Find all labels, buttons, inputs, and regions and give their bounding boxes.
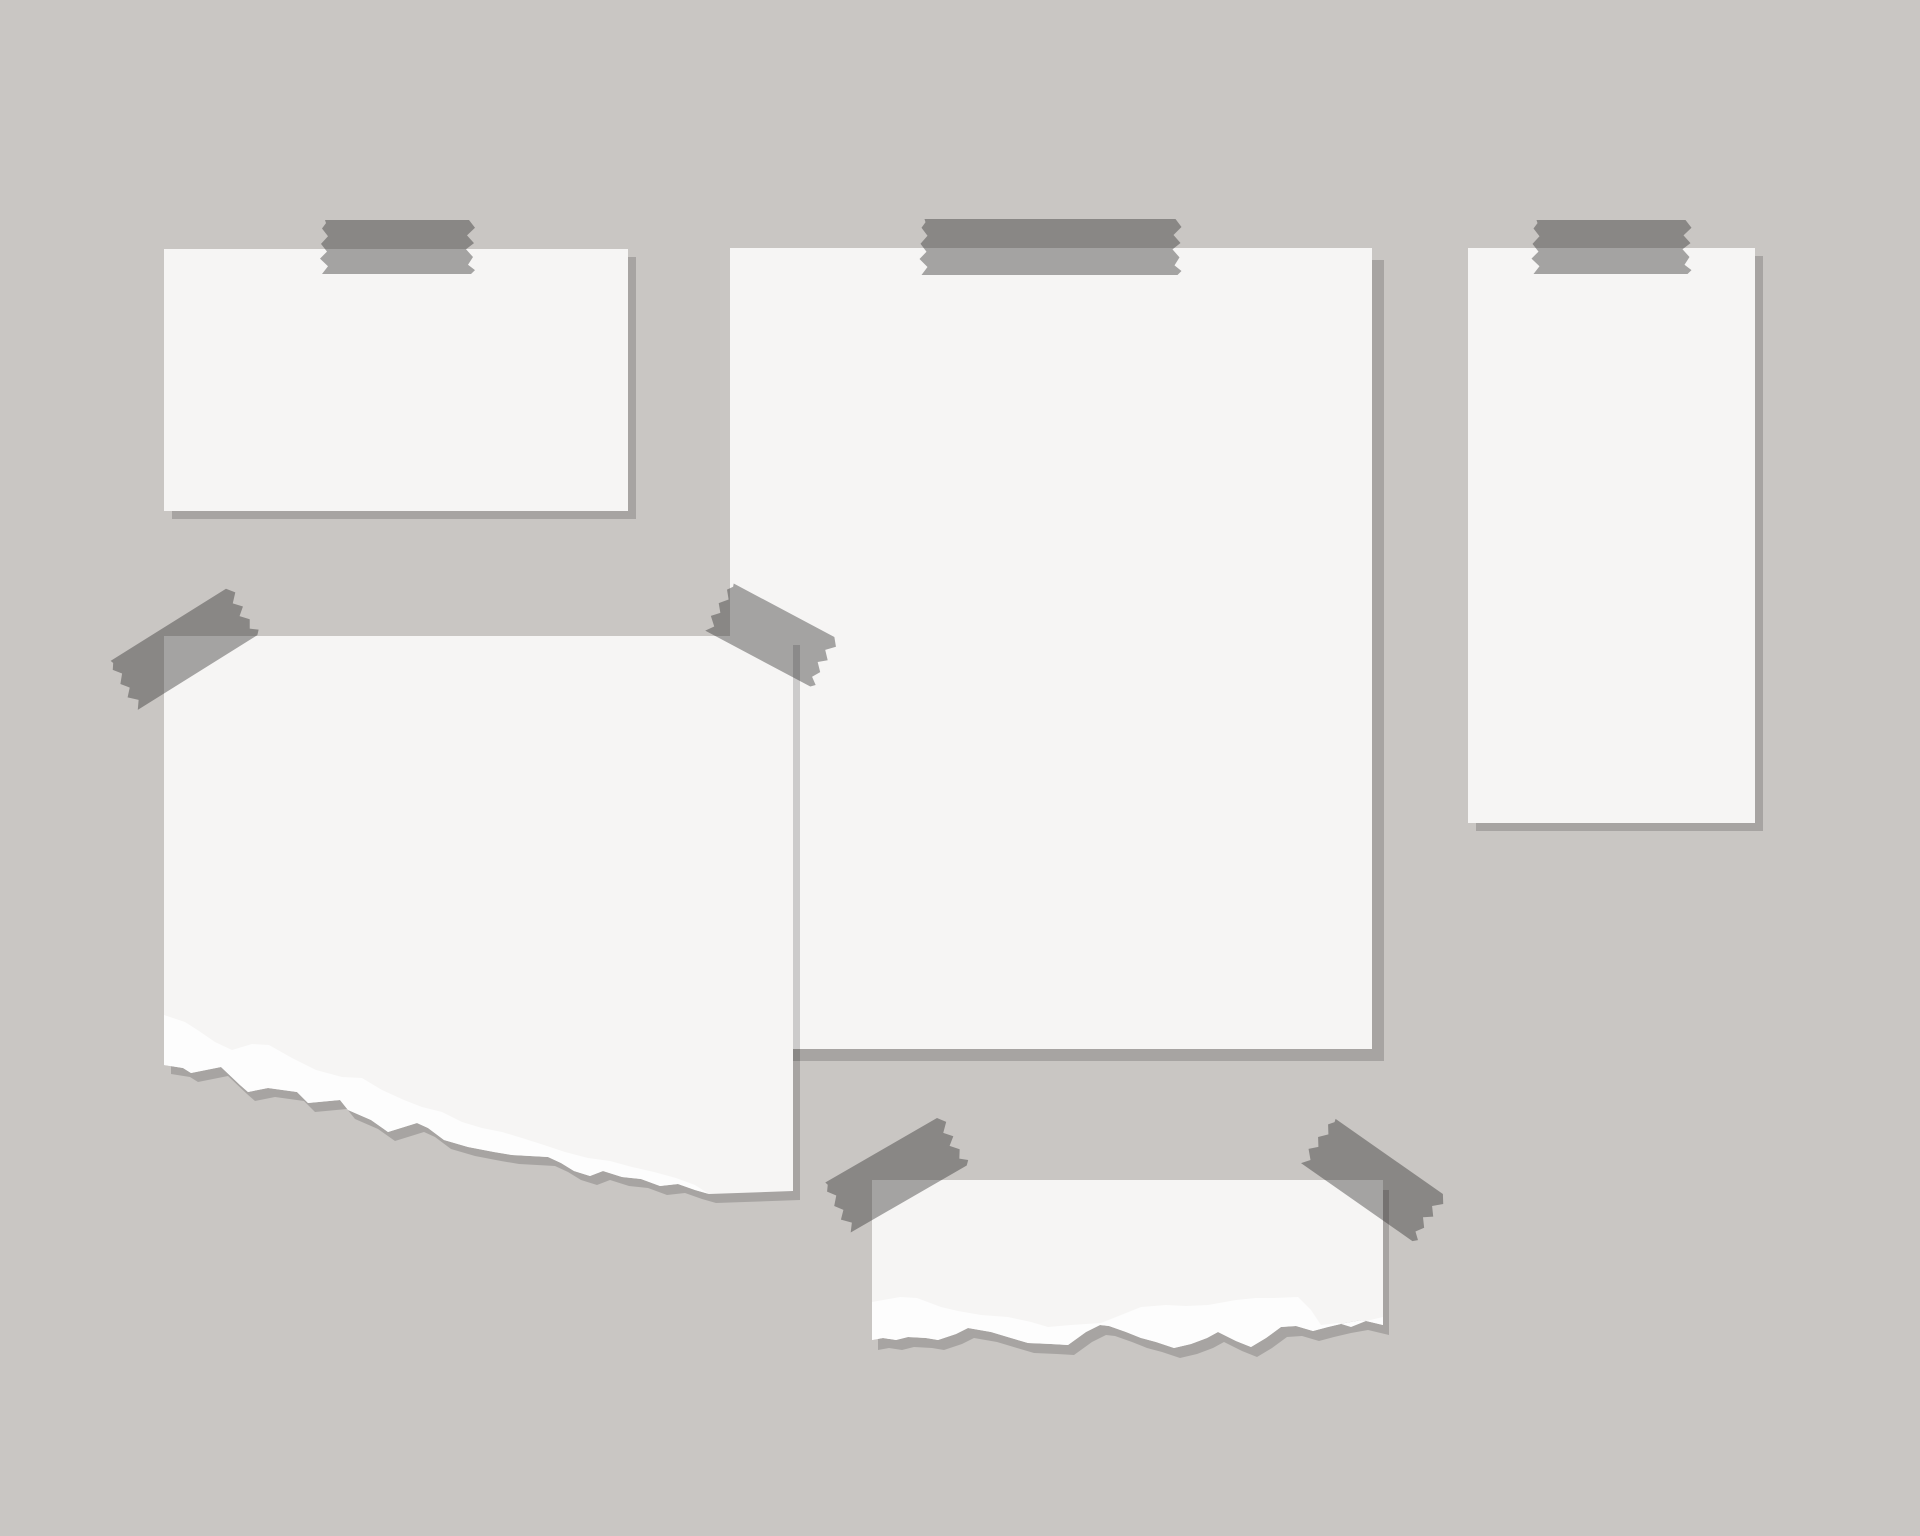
paper-top-left-landscape-sheet	[164, 249, 628, 511]
moodboard-stage	[0, 0, 1920, 1536]
tape-paper-top-left	[320, 220, 475, 274]
paper-top-left-landscape	[164, 220, 636, 519]
paper-right-tall-portrait	[1468, 220, 1763, 831]
tape-paper-right	[1532, 220, 1692, 274]
paper-right-tall-portrait-sheet	[1468, 248, 1755, 823]
scene-canvas	[0, 0, 1920, 1536]
tape-paper-center	[920, 219, 1182, 275]
